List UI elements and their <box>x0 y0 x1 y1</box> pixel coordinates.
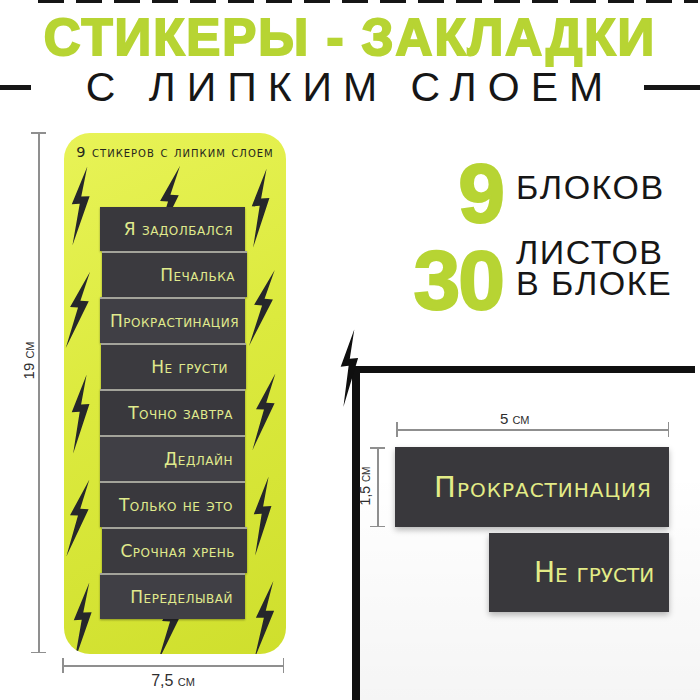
height-dimension-label: 19 см <box>20 321 37 401</box>
sticker-height-dimension-line <box>377 447 379 527</box>
photo-sticker-large: Прокрастинация <box>395 447 669 527</box>
lightning-bolt-icon <box>64 374 103 454</box>
sticker-stack: Я задолбался Печалька Прокрастинация Не … <box>100 207 245 619</box>
sheets-label-line2: В БЛОКЕ <box>516 268 672 299</box>
sticker-width-dimension-label: 5 см <box>500 410 530 427</box>
product-subtitle-row: С ЛИПКИМ СЛОЕМ <box>0 66 700 108</box>
height-dimension-line <box>38 132 40 653</box>
lightning-bolt-icon <box>244 372 286 452</box>
sticker-height-dimension-label: 1,5 см <box>357 451 373 521</box>
lightning-bolt-icon <box>64 582 104 654</box>
blocks-count: 9 <box>380 151 503 235</box>
sheets-label: ЛИСТОВ В БЛОКЕ <box>516 237 672 299</box>
lightning-bolt-icon <box>64 166 102 246</box>
product-subtitle: С ЛИПКИМ СЛОЕМ <box>86 64 614 111</box>
product-title: СТИКЕРЫ - ЗАКЛАДКИ <box>0 7 700 67</box>
photo-frame-left <box>352 366 360 700</box>
sticker-block: Печалька <box>102 251 247 297</box>
width-dimension-label: 7,5 см <box>62 672 284 690</box>
lightning-bolt-icon <box>64 478 100 558</box>
lightning-bolt-icon <box>64 270 101 350</box>
sticker-width-dimension-line <box>396 429 669 431</box>
width-dimension-line <box>62 665 284 667</box>
sticker-block: Переделывай <box>100 573 245 619</box>
lightning-bolt-icon <box>246 581 284 654</box>
photo-sticker-small: Не грусти <box>489 533 669 612</box>
sticker-block: Только не это <box>100 481 245 527</box>
sticker-card: 9 стикеров с липким слоем Я задолбался П… <box>64 133 286 654</box>
lightning-bolt-icon <box>239 168 282 248</box>
product-image: СТИКЕРЫ - ЗАКЛАДКИ С ЛИПКИМ СЛОЕМ 19 см … <box>0 0 700 700</box>
sheets-count: 30 <box>370 238 503 322</box>
sticker-block: Срочная хрень <box>102 527 247 573</box>
sticker-block: Дедлайн <box>100 435 245 481</box>
lightning-bolt-icon <box>241 476 284 556</box>
sticker-block: Не грусти <box>101 343 246 389</box>
card-header-text: 9 стикеров с липким слоем <box>64 144 286 160</box>
cropped-edge-artifact <box>38 0 698 3</box>
subtitle-left-rule <box>0 85 31 90</box>
sticker-block: Прокрастинация <box>100 297 245 343</box>
subtitle-right-rule <box>644 85 700 90</box>
sticker-block: Точно завтра <box>100 389 245 435</box>
photo-frame-top <box>352 366 695 373</box>
blocks-label: БЛОКОВ <box>516 172 665 203</box>
lightning-bolt-icon <box>241 267 286 348</box>
sticker-block: Я задолбался <box>100 207 245 251</box>
